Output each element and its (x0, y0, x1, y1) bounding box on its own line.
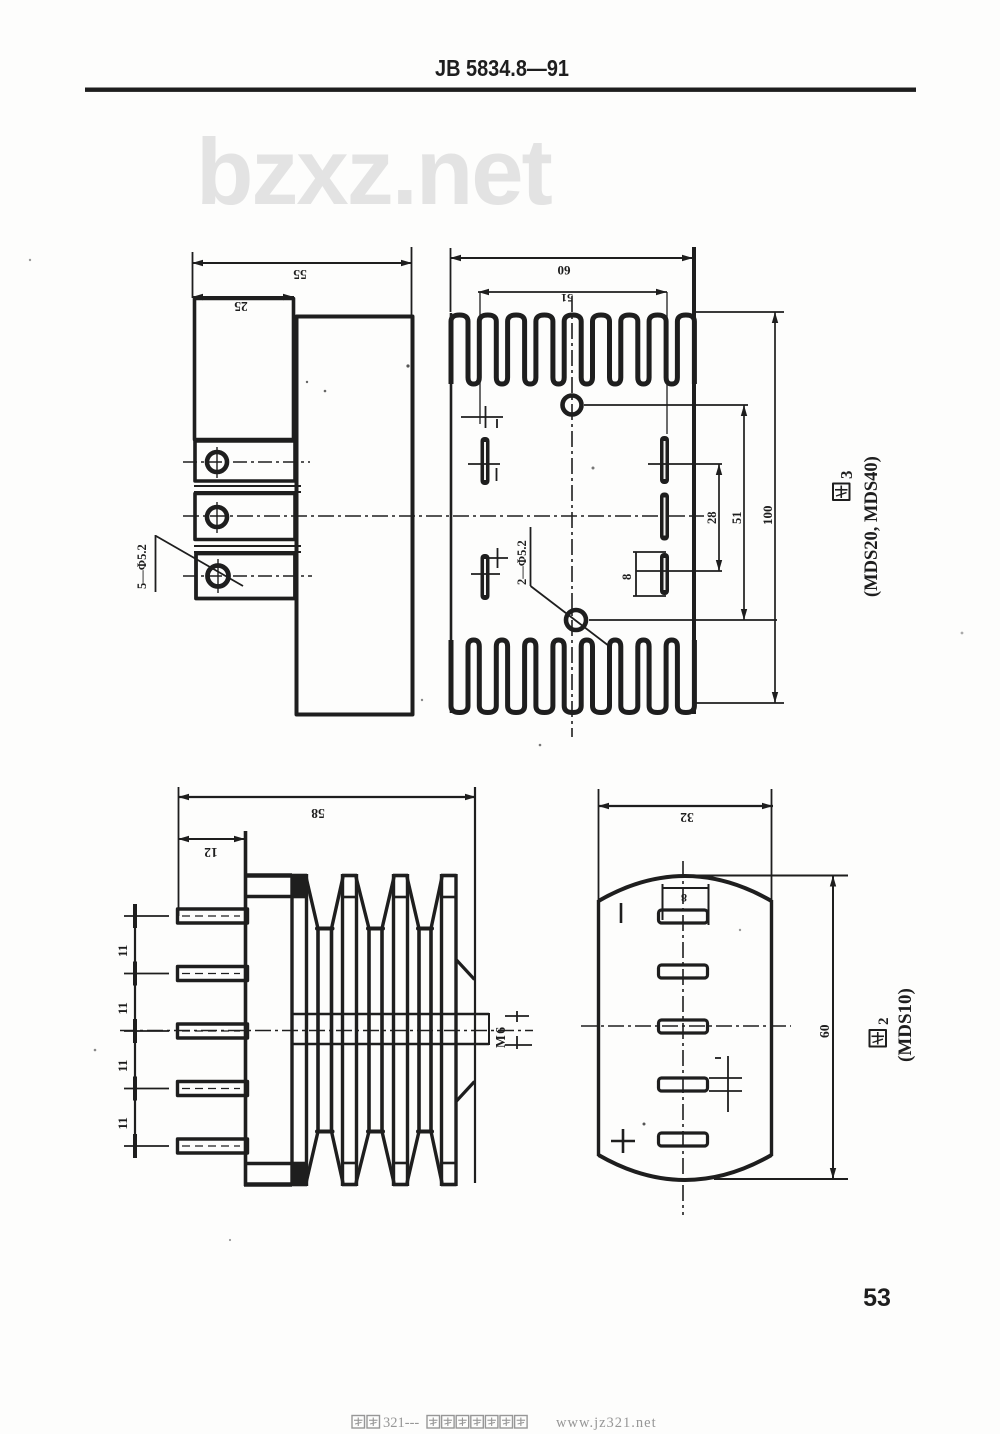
svg-text:5—Φ5.2: 5—Φ5.2 (135, 544, 149, 589)
svg-text:8: 8 (620, 574, 634, 580)
svg-text:12: 12 (204, 845, 218, 860)
svg-text:32: 32 (680, 810, 694, 825)
svg-text:bzxz.net: bzxz.net (196, 119, 553, 224)
svg-text:(MDS20, MDS40): (MDS20, MDS40) (862, 456, 882, 597)
svg-text:M6: M6 (493, 1026, 508, 1049)
svg-text:www.jz321.net: www.jz321.net (556, 1415, 657, 1431)
svg-text:51: 51 (730, 512, 744, 525)
svg-text:3: 3 (837, 471, 856, 480)
svg-text:53: 53 (863, 1284, 891, 1312)
svg-text:60: 60 (558, 263, 571, 278)
svg-text:55: 55 (293, 267, 307, 282)
svg-text:2—Φ5.2: 2—Φ5.2 (515, 540, 529, 585)
svg-text:8: 8 (681, 891, 687, 905)
svg-text:60: 60 (817, 1024, 832, 1038)
svg-text:321---: 321--- (383, 1415, 419, 1431)
svg-text:11: 11 (115, 1117, 130, 1129)
svg-text:58: 58 (311, 806, 325, 821)
svg-text:11: 11 (115, 945, 130, 957)
svg-text:100: 100 (760, 506, 775, 526)
svg-text:2: 2 (876, 1018, 892, 1026)
svg-text:(MDS10): (MDS10) (895, 988, 916, 1062)
svg-text:25: 25 (234, 299, 248, 314)
svg-text:JB 5834.8—91: JB 5834.8—91 (435, 55, 569, 81)
svg-text:28: 28 (705, 512, 719, 525)
svg-text:11: 11 (115, 1002, 130, 1014)
svg-text:11: 11 (115, 1060, 130, 1072)
